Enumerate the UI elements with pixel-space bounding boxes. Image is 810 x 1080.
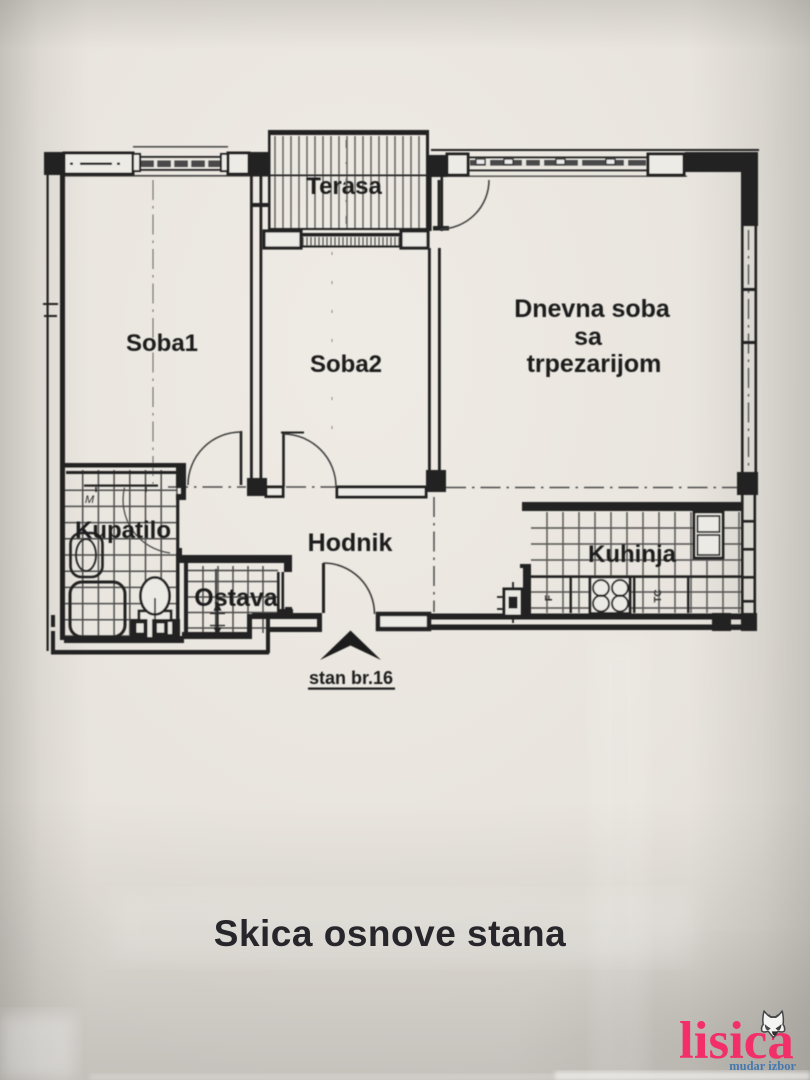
svg-text:Hodnik: Hodnik	[308, 529, 393, 557]
svg-text:mudar izbor: mudar izbor	[729, 1059, 796, 1073]
svg-text:Dnevna soba: Dnevna soba	[514, 295, 671, 323]
svg-text:Terasa: Terasa	[306, 173, 382, 200]
svg-text:Ostava: Ostava	[194, 584, 278, 612]
svg-text:Soba2: Soba2	[310, 351, 382, 378]
svg-text:Kupatilo: Kupatilo	[75, 517, 171, 544]
svg-text:stan br.16: stan br.16	[309, 668, 393, 688]
svg-text:TC: TC	[653, 589, 664, 602]
svg-text:F: F	[544, 595, 555, 601]
svg-text:sa: sa	[574, 323, 603, 351]
svg-text:Skica osnove stana: Skica osnove stana	[214, 913, 566, 954]
svg-text:trpezarijom: trpezarijom	[527, 350, 662, 378]
svg-text:Soba1: Soba1	[126, 330, 198, 357]
svg-text:M: M	[85, 494, 95, 506]
svg-text:Kuhinja: Kuhinja	[588, 541, 677, 568]
